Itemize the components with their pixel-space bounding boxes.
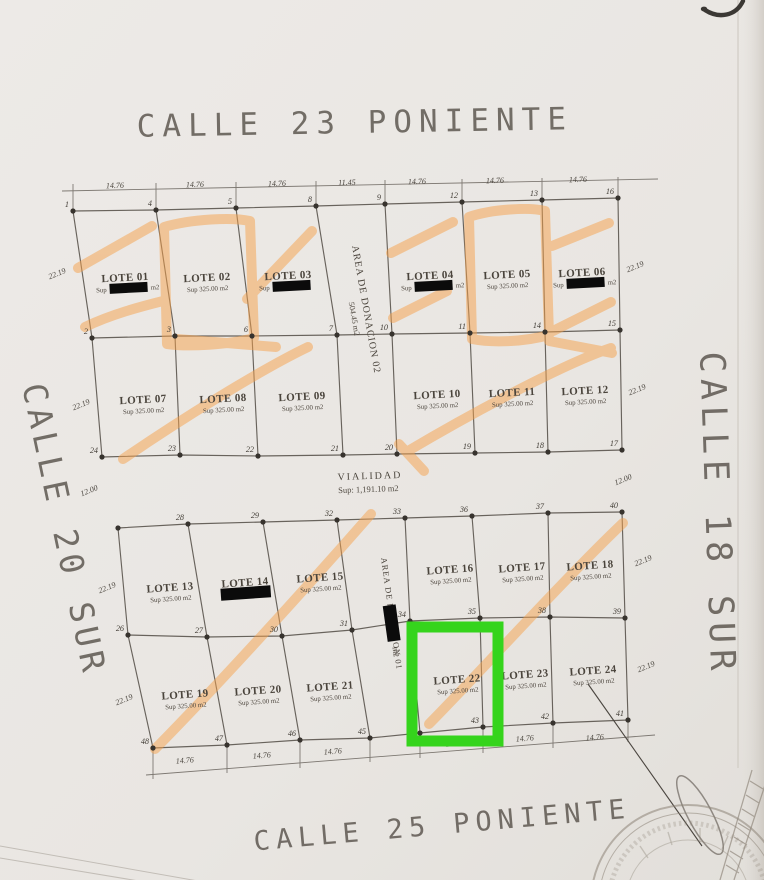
area-donacion-01-sup: m2	[391, 646, 401, 657]
vertex-dot	[402, 515, 407, 520]
vertex-number: 45	[358, 727, 366, 736]
vertex-dot	[550, 720, 555, 725]
lot-label-group: LOTE 20Sup 325.00 m2	[234, 683, 283, 707]
street-label-top: CALLE 23 PONIENTE	[136, 101, 573, 145]
dimension-label: 14.76	[515, 733, 534, 744]
dimension-label: 14.76	[585, 732, 604, 743]
lot-name: LOTE 09	[278, 390, 326, 404]
dimension-label: 14.76	[408, 177, 426, 187]
vertex-number: 29	[251, 511, 259, 520]
vertex-dot	[115, 525, 120, 530]
vertex-dot	[349, 627, 354, 632]
vertex-dot	[615, 195, 620, 200]
vertex-dot	[542, 329, 547, 334]
vertex-number: 18	[536, 441, 544, 450]
lot-sup: m2	[607, 279, 617, 286]
lot-label-group: LOTE 12Sup 325.00 m2	[561, 384, 609, 407]
vertex-dot	[545, 449, 550, 454]
vertex-number: 24	[90, 446, 98, 455]
lot-label-group: LOTE 19Sup 325.00 m2	[161, 687, 210, 711]
lot-sup: Sup	[401, 285, 413, 293]
vertex-dot	[255, 453, 260, 458]
vertex-dot	[279, 633, 284, 638]
vertex-number: 15	[608, 319, 616, 328]
vertex-number: 9	[377, 193, 381, 202]
lot-label-group: LOTE 13Sup 325.00 m2	[146, 580, 195, 604]
lot-label-group: LOTE 18Sup 325.00 m2	[566, 558, 615, 582]
lot-name: LOTE 11	[489, 386, 536, 400]
vertex-dot	[619, 509, 624, 514]
vertex-number: 32	[324, 509, 333, 518]
vertex-number: 19	[463, 442, 471, 451]
vialidad-label: VIALIDAD	[337, 470, 402, 483]
vertex-number: 36	[459, 505, 469, 514]
lot-label-group: LOTE 03Sup	[258, 269, 312, 293]
lot-label-group: LOTE 17Sup 325.00 m2	[498, 560, 547, 584]
dimension-label: 14.76	[106, 181, 124, 191]
lot-sup: m2	[455, 282, 465, 289]
lot-label-group: LOTE 23Sup 325.00 m2	[501, 667, 550, 691]
lot-label-group: LOTE 22Sup 325.00 m2	[433, 672, 482, 696]
vertex-number: 3	[166, 325, 171, 334]
vertex-dot	[417, 730, 422, 735]
vertex-number: 14	[533, 321, 541, 330]
vertex-number: 35	[467, 607, 476, 616]
vertex-dot	[297, 737, 302, 742]
vertex-number: 39	[612, 607, 621, 616]
dimension-label: 14.76	[323, 746, 342, 757]
vertex-dot	[394, 451, 399, 456]
vertex-dot	[233, 205, 238, 210]
vertex-dot	[382, 201, 387, 206]
vertex-dot	[260, 519, 265, 524]
vertex-number: 17	[610, 439, 619, 448]
lot-name: LOTE 10	[413, 388, 461, 402]
lot-label-group: LOTE 16Sup 325.00 m2	[426, 562, 475, 586]
lot-name: LOTE 05	[483, 268, 531, 282]
vialidad-sup: Sup: 1,191.10 m2	[338, 483, 399, 495]
vertex-dot	[313, 203, 318, 208]
vertex-dot	[89, 335, 94, 340]
vertex-number: 30	[269, 625, 278, 634]
lot-label-group: LOTE 24Sup 325.00 m2	[569, 663, 618, 687]
vertex-number: 10	[380, 323, 388, 332]
vertex-number: 1	[65, 200, 69, 209]
vertex-dot	[625, 717, 630, 722]
vertex-dot	[340, 452, 345, 457]
vertex-dot	[224, 742, 229, 747]
vertex-dot	[185, 521, 190, 526]
vertex-number: 20	[385, 443, 393, 452]
vertex-number: 48	[141, 737, 149, 746]
lot-label-group: LOTE 09Sup 325.00 m2	[278, 390, 326, 413]
vertex-dot	[125, 632, 130, 637]
vertex-dot	[177, 452, 182, 457]
vertex-dot	[539, 197, 544, 202]
vertex-dot	[70, 208, 75, 213]
vertex-number: 41	[616, 709, 624, 718]
vertex-number: 46	[288, 729, 297, 738]
vertex-number: 38	[537, 606, 546, 615]
vertex-dot	[467, 330, 472, 335]
vertex-dot	[622, 615, 627, 620]
plat-map-scan: 1458912131623671011141524232221201918172…	[0, 0, 764, 880]
lot-name: LOTE 08	[199, 392, 247, 406]
vertex-number: 42	[541, 712, 549, 721]
dimension-label: 14.76	[486, 176, 504, 186]
lot-name: LOTE 07	[119, 393, 167, 407]
vertex-number: 33	[392, 507, 401, 516]
dimension-label: 14.76	[252, 750, 271, 761]
vertex-number: 5	[228, 197, 232, 206]
lot-label-group: LOTE 15Sup 325.00 m2	[296, 570, 345, 594]
vertex-number: 13	[530, 189, 538, 198]
vertex-dot	[99, 454, 104, 459]
vertex-number: 37	[535, 502, 545, 511]
lot-label-group: LOTE 05Sup 325.00 m2	[483, 268, 531, 291]
dimension-label: 14.76	[268, 179, 286, 189]
vertex-dot	[547, 614, 552, 619]
vertex-number: 21	[331, 444, 339, 453]
vertex-dot	[477, 615, 482, 620]
lot-label-group: LOTE 14	[220, 575, 271, 600]
paper-right-edge-shadow	[738, 0, 764, 880]
dimension-label: 14.76	[175, 755, 194, 766]
redaction-bar	[414, 280, 452, 292]
vertex-dot	[150, 745, 155, 750]
redaction-bar	[272, 280, 310, 292]
vertex-dot	[204, 634, 209, 639]
redaction-bar	[566, 277, 604, 289]
vertex-number: 43	[471, 716, 479, 725]
vertex-dot	[153, 207, 158, 212]
vertex-dot	[469, 513, 474, 518]
dimension-label: 14.76	[569, 175, 587, 185]
lot-label-group: LOTE 21Sup 325.00 m2	[306, 679, 354, 703]
vertex-dot	[389, 331, 394, 336]
lot-label-group: LOTE 11Sup 325.00 m2	[489, 386, 537, 409]
vertex-number: 40	[610, 501, 618, 510]
vertex-number: 47	[215, 734, 224, 743]
vertex-number: 31	[339, 619, 348, 628]
vertex-number: 2	[84, 327, 88, 336]
vertex-number: 27	[195, 626, 204, 635]
vertex-dot	[545, 510, 550, 515]
dimension-label: 11.45	[338, 178, 356, 188]
vertex-dot	[619, 447, 624, 452]
redaction-bar	[109, 282, 147, 294]
vertex-number: 8	[308, 195, 312, 204]
vertex-dot	[172, 333, 177, 338]
vertex-number: 11	[458, 322, 466, 331]
vertex-dot	[334, 332, 339, 337]
lot-label-group: LOTE 02Sup 325.00 m2	[183, 271, 231, 294]
lot-sup: Sup	[259, 285, 271, 293]
lot-label-group: LOTE 07Sup 325.00 m2	[119, 393, 167, 416]
lot-sup: Sup	[553, 282, 565, 290]
lot-name: LOTE 12	[561, 384, 609, 398]
vertex-number: 16	[606, 187, 615, 196]
lot-label-group: LOTE 08Sup 325.00 m2	[199, 392, 247, 415]
vertex-dot	[459, 199, 464, 204]
vertex-number: 4	[148, 199, 152, 208]
vertex-dot	[249, 333, 254, 338]
lot-sup: Sup	[96, 287, 108, 295]
lot-sup: m2	[150, 284, 160, 291]
vertex-number: 22	[246, 445, 254, 454]
vertex-dot	[472, 450, 477, 455]
vertex-dot	[367, 735, 372, 740]
vertex-number: 12	[450, 191, 458, 200]
dimension-label: 14.76	[186, 180, 204, 190]
vertex-dot	[480, 724, 485, 729]
vertex-dot	[334, 517, 339, 522]
lot-name: LOTE 02	[183, 271, 231, 285]
vertex-number: 23	[168, 444, 176, 453]
vertex-number: 28	[176, 513, 184, 522]
vertex-dot	[617, 327, 622, 332]
vertex-number: 26	[116, 624, 125, 633]
lot-label-group: LOTE 10Sup 325.00 m2	[413, 388, 461, 411]
